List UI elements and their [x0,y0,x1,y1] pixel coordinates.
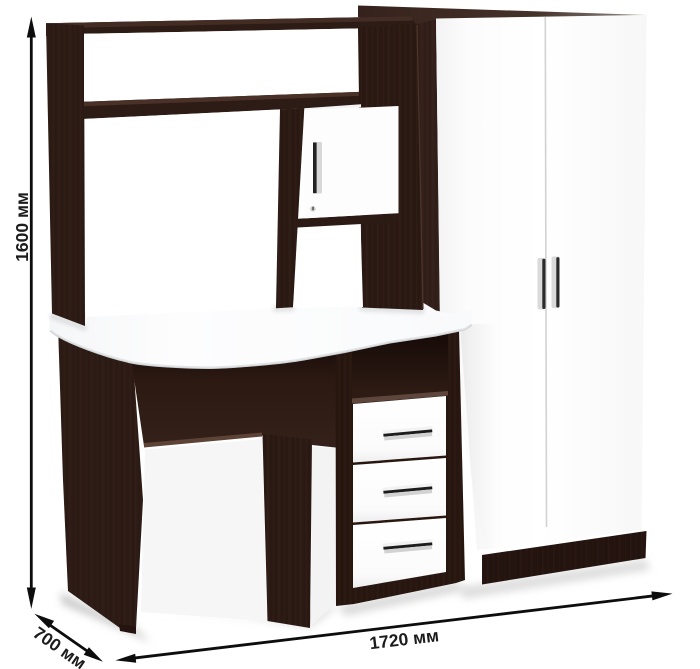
svg-text:1600 мм: 1600 мм [12,192,32,262]
